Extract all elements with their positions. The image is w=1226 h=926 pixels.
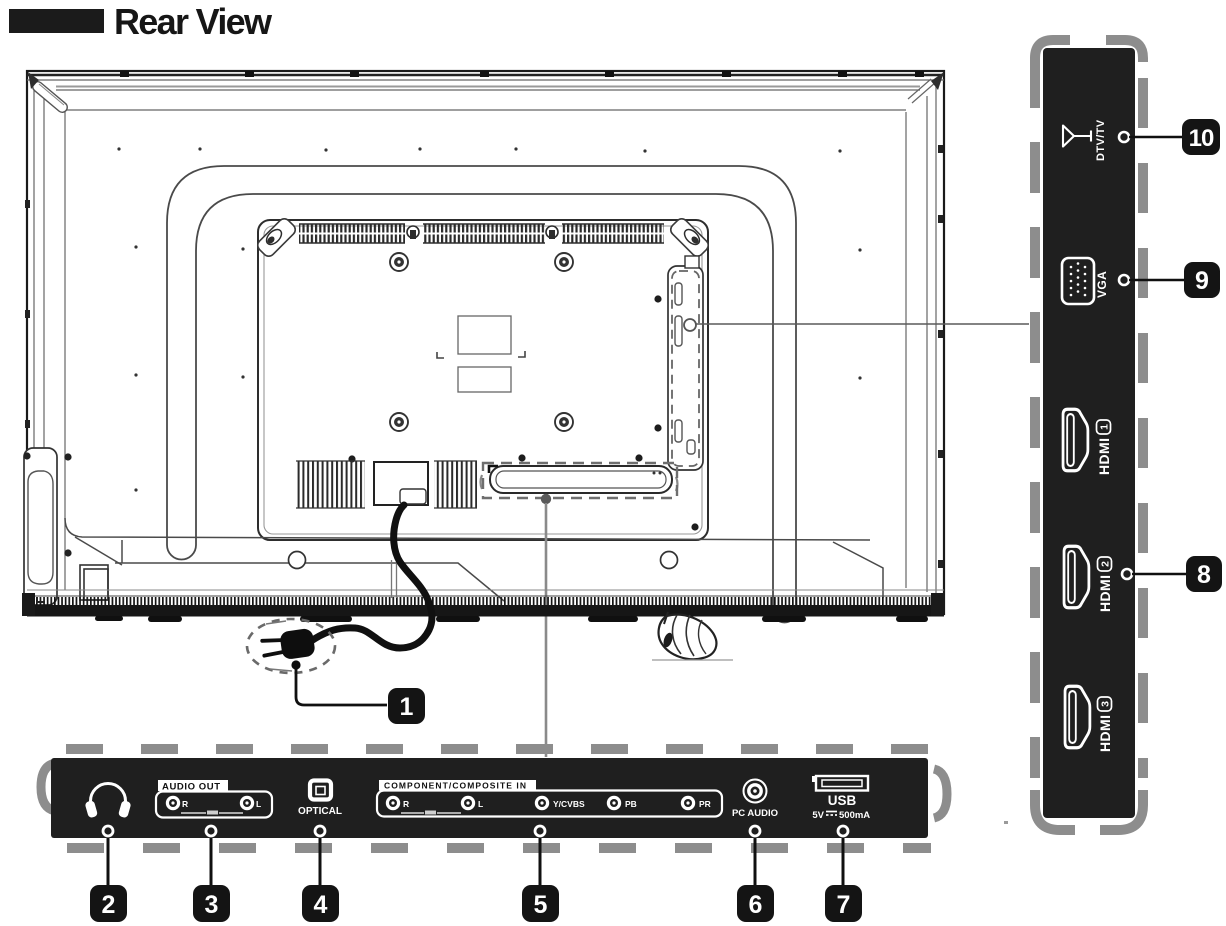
svg-text:OPTICAL: OPTICAL <box>298 806 342 817</box>
svg-text:R: R <box>403 799 409 809</box>
svg-text:PR: PR <box>699 799 711 809</box>
svg-text:1: 1 <box>400 693 414 721</box>
svg-text:2: 2 <box>1100 561 1112 567</box>
svg-text:VGA: VGA <box>1095 271 1109 298</box>
svg-text:2: 2 <box>102 891 116 919</box>
svg-text:1: 1 <box>1099 424 1111 430</box>
svg-text:10: 10 <box>1189 125 1214 152</box>
svg-text:5V: 5V <box>812 810 824 821</box>
svg-text:L: L <box>256 799 261 809</box>
svg-text:5: 5 <box>534 891 548 919</box>
svg-text:7: 7 <box>837 891 851 919</box>
svg-text:Rear View: Rear View <box>114 1 273 42</box>
svg-text:6: 6 <box>749 891 763 919</box>
svg-text:L: L <box>478 799 483 809</box>
svg-text:R: R <box>182 799 188 809</box>
svg-text:USB: USB <box>828 793 857 808</box>
svg-text:COMPONENT/COMPOSITE IN: COMPONENT/COMPOSITE IN <box>384 781 526 791</box>
svg-text:Y/CVBS: Y/CVBS <box>553 799 585 809</box>
svg-text:4: 4 <box>314 891 328 919</box>
svg-text:8: 8 <box>1197 561 1211 589</box>
svg-text:PC AUDIO: PC AUDIO <box>732 808 778 819</box>
svg-text:3: 3 <box>205 891 219 919</box>
svg-text:9: 9 <box>1195 267 1209 295</box>
svg-text:HDMI: HDMI <box>1097 715 1113 752</box>
svg-text:PB: PB <box>625 799 637 809</box>
svg-text:HDMI: HDMI <box>1096 438 1112 475</box>
svg-text:500mA: 500mA <box>839 810 870 821</box>
svg-text:3: 3 <box>1100 701 1112 707</box>
svg-text:DTV/TV: DTV/TV <box>1095 119 1107 161</box>
svg-text:HDMI: HDMI <box>1097 575 1113 612</box>
